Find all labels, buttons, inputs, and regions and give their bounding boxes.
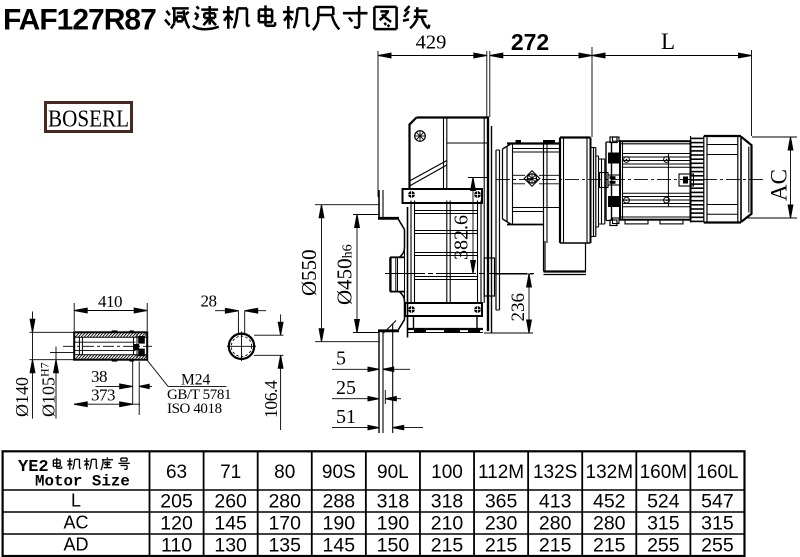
svg-text:280: 280 — [593, 513, 626, 535]
svg-text:120: 120 — [160, 513, 193, 535]
svg-text:288: 288 — [323, 491, 356, 513]
svg-text:38: 38 — [91, 367, 107, 386]
svg-text:452: 452 — [593, 491, 626, 513]
svg-text:429: 429 — [416, 32, 447, 54]
svg-text:132M: 132M — [586, 462, 634, 483]
svg-text:28: 28 — [201, 292, 217, 311]
svg-text:318: 318 — [431, 491, 464, 513]
svg-text:135: 135 — [268, 535, 301, 557]
svg-text:160L: 160L — [696, 462, 738, 483]
svg-text:410: 410 — [98, 292, 122, 311]
svg-text:145: 145 — [214, 513, 247, 535]
svg-text:215: 215 — [539, 535, 572, 557]
svg-text:63: 63 — [166, 462, 187, 483]
svg-text:AC: AC — [767, 169, 792, 201]
svg-text:100: 100 — [431, 462, 463, 483]
svg-text:150: 150 — [377, 535, 410, 557]
svg-text:190: 190 — [323, 513, 356, 535]
svg-text:373: 373 — [91, 386, 115, 405]
svg-text:236: 236 — [508, 293, 529, 322]
svg-text:AC: AC — [63, 513, 88, 533]
svg-text:132S: 132S — [533, 462, 577, 483]
svg-text:190: 190 — [377, 513, 410, 535]
svg-text:255: 255 — [701, 535, 734, 557]
svg-text:524: 524 — [647, 491, 680, 513]
svg-text:Ø550: Ø550 — [297, 249, 321, 296]
svg-text:L: L — [71, 491, 81, 511]
svg-text:110: 110 — [161, 535, 192, 557]
svg-text:L: L — [661, 29, 675, 54]
svg-text:413: 413 — [539, 491, 572, 513]
svg-text:160M: 160M — [640, 462, 688, 483]
svg-text:AD: AD — [63, 535, 88, 555]
svg-text:130: 130 — [214, 535, 247, 557]
svg-text:382.6: 382.6 — [451, 215, 473, 260]
svg-text:112M: 112M — [478, 462, 524, 483]
svg-text:90S: 90S — [322, 462, 356, 483]
svg-text:205: 205 — [160, 491, 193, 513]
svg-text:230: 230 — [485, 513, 518, 535]
svg-text:Ø140: Ø140 — [12, 377, 32, 417]
svg-text:280: 280 — [539, 513, 572, 535]
svg-text:280: 280 — [268, 491, 301, 513]
svg-text:5: 5 — [336, 348, 346, 370]
svg-text:80: 80 — [274, 462, 295, 483]
svg-text:272: 272 — [511, 29, 549, 55]
svg-text:315: 315 — [701, 513, 734, 535]
svg-text:255: 255 — [647, 535, 680, 557]
svg-text:Motor Size: Motor Size — [35, 473, 130, 491]
svg-text:71: 71 — [220, 462, 241, 483]
svg-text:51: 51 — [336, 406, 356, 428]
svg-text:315: 315 — [647, 513, 680, 535]
svg-text:M24: M24 — [181, 372, 211, 389]
svg-text:260: 260 — [214, 491, 247, 513]
svg-text:FAF127R87: FAF127R87 — [3, 4, 156, 37]
svg-text:BOSERL: BOSERL — [48, 107, 129, 133]
svg-text:90L: 90L — [377, 462, 409, 483]
svg-text:170: 170 — [268, 513, 301, 535]
svg-text:ISO 4018: ISO 4018 — [167, 401, 222, 417]
svg-text:547: 547 — [701, 491, 734, 513]
svg-text:210: 210 — [431, 513, 464, 535]
svg-text:25: 25 — [336, 377, 356, 399]
svg-text:215: 215 — [485, 535, 518, 557]
svg-text:106.4: 106.4 — [261, 380, 281, 418]
svg-text:365: 365 — [485, 491, 518, 513]
svg-text:145: 145 — [323, 535, 356, 557]
svg-text:318: 318 — [377, 491, 410, 513]
svg-text:215: 215 — [593, 535, 626, 557]
svg-text:215: 215 — [431, 535, 464, 557]
